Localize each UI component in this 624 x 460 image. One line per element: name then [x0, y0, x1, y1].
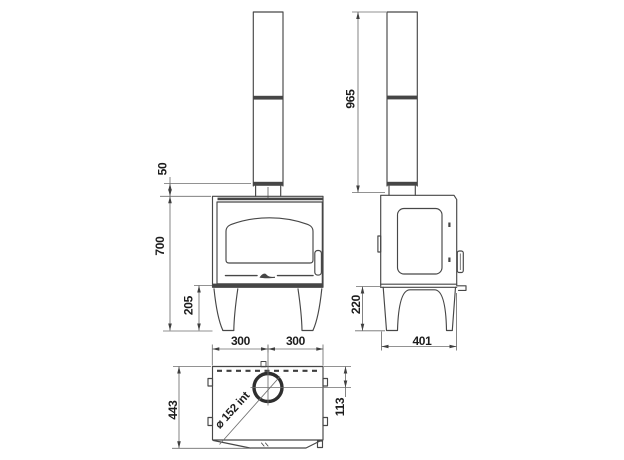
drawing-canvas: ⌀ 152 int 50 700 205 [0, 0, 624, 460]
brand-logo-mark [260, 274, 276, 279]
side-left-tab [378, 236, 381, 252]
dim-front-collar-50: 50 [156, 162, 252, 196]
dimension-label-401: 401 [412, 334, 432, 348]
hinge-pin-top [448, 223, 450, 228]
dim-front-legs-205: 205 [182, 286, 213, 331]
side-pipe-joint-band [387, 96, 417, 100]
flue-diameter-label: ⌀ 152 int [213, 390, 252, 431]
dimension-label-113: 113 [333, 397, 347, 416]
dim-top-flue-offset-113: 113 [324, 367, 351, 417]
front-legs [214, 289, 322, 331]
front-pipe-joint-band [253, 96, 283, 100]
stove-technical-drawing: ⌀ 152 int 50 700 205 [0, 0, 624, 460]
dimension-label-300-left: 300 [231, 334, 251, 348]
dimension-label-443: 443 [166, 400, 180, 420]
dimension-label-965: 965 [344, 89, 358, 109]
dim-side-flue-height-965: 965 [344, 12, 387, 193]
side-view [378, 12, 466, 331]
side-window [398, 209, 443, 275]
dimension-label-700: 700 [153, 236, 167, 256]
side-latch [457, 286, 466, 291]
dimension-label-300-right: 300 [286, 334, 306, 348]
front-pipe-collar-band [253, 182, 283, 186]
front-base-band [213, 284, 323, 288]
dim-side-legs-220: 220 [349, 287, 385, 331]
dimension-label-220: 220 [349, 294, 363, 314]
side-pipe-collar-band [387, 182, 417, 186]
front-view [213, 12, 324, 331]
front-door-handle [315, 251, 322, 276]
side-body [378, 195, 466, 330]
top-front-bevel [214, 441, 323, 449]
side-legs [383, 287, 455, 330]
front-door [217, 202, 322, 284]
front-flue-pipe [253, 12, 283, 200]
dimensions: 50 700 205 300 300 [153, 12, 457, 448]
dim-side-depth-401: 401 [382, 293, 457, 351]
top-view: ⌀ 152 int [208, 345, 351, 449]
dimension-label-205: 205 [182, 295, 196, 315]
front-body [213, 196, 324, 330]
front-body-outline [213, 196, 324, 287]
front-door-window [226, 218, 313, 263]
dimension-label-50: 50 [156, 162, 170, 175]
side-flue-pipe [387, 12, 417, 195]
hinge-pin-bottom [448, 258, 450, 263]
front-top-plate-band [218, 198, 323, 201]
